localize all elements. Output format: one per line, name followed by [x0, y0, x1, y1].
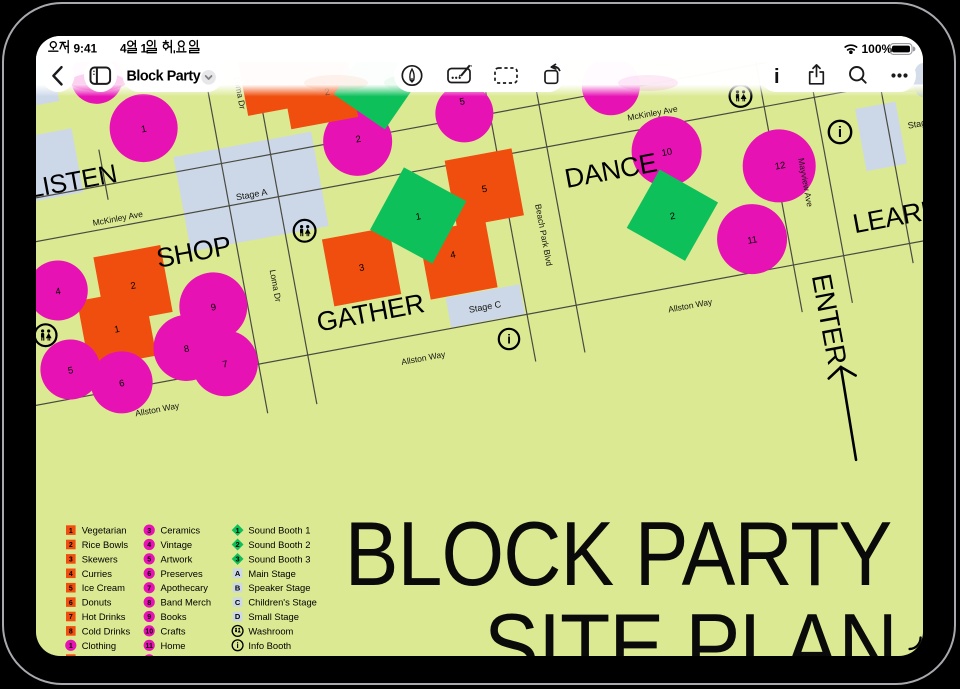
svg-text:Ceramics: Ceramics [161, 525, 201, 536]
svg-text:Rice Bowls: Rice Bowls [82, 539, 129, 550]
svg-text:10: 10 [145, 629, 153, 636]
svg-text:Ice Cream: Ice Cream [82, 582, 125, 593]
svg-text:11: 11 [746, 234, 758, 247]
svg-text:Band Merch: Band Merch [161, 597, 212, 608]
svg-text:Artwork: Artwork [161, 553, 193, 564]
svg-text:7: 7 [69, 614, 73, 621]
svg-text:Clothing: Clothing [82, 640, 116, 651]
svg-text:6: 6 [69, 600, 73, 607]
svg-text:3: 3 [236, 555, 240, 564]
svg-text:3: 3 [147, 528, 151, 535]
svg-text:2: 2 [236, 540, 240, 549]
svg-text:Allston Way: Allston Way [667, 296, 713, 314]
svg-text:Curries: Curries [82, 568, 113, 579]
svg-text:1: 1 [141, 42, 148, 56]
svg-text:LEARN: LEARN [850, 194, 923, 240]
svg-text:12: 12 [774, 160, 786, 173]
svg-text:Vintage: Vintage [161, 539, 193, 550]
svg-text:7: 7 [147, 585, 151, 592]
svg-text:Sound Booth 3: Sound Booth 3 [248, 553, 310, 564]
svg-text:Stage D: Stage D [907, 115, 923, 131]
svg-text:4: 4 [120, 42, 127, 56]
svg-text:100%: 100% [862, 42, 893, 56]
svg-text:2: 2 [69, 542, 73, 549]
svg-text:Block Party: Block Party [127, 69, 201, 85]
svg-text:Home: Home [161, 640, 186, 651]
svg-text:C: C [235, 598, 241, 607]
svg-text:9:41: 9:41 [74, 42, 98, 56]
svg-text:5: 5 [69, 585, 73, 592]
svg-text:Main Stage: Main Stage [248, 568, 295, 579]
svg-text:B: B [235, 583, 241, 592]
svg-text:Sound Booth 2: Sound Booth 2 [248, 539, 310, 550]
svg-text:1: 1 [236, 526, 240, 535]
svg-text:9: 9 [147, 614, 151, 621]
svg-text:i: i [507, 332, 511, 347]
svg-text:i: i [838, 124, 842, 141]
svg-text:i: i [774, 66, 780, 88]
svg-text:Cold Drinks: Cold Drinks [82, 625, 131, 636]
svg-text:Beach Park Blvd: Beach Park Blvd [533, 203, 554, 267]
svg-text:Books: Books [161, 611, 187, 622]
svg-text:Preserves: Preserves [161, 568, 204, 579]
svg-text:6: 6 [147, 571, 151, 578]
svg-text:Info Booth: Info Booth [248, 640, 291, 651]
svg-text:i: i [236, 641, 238, 650]
svg-text:Donuts: Donuts [82, 597, 112, 608]
svg-text:Speaker Stage: Speaker Stage [248, 582, 310, 593]
svg-text:5: 5 [147, 557, 151, 564]
svg-text:11: 11 [145, 643, 153, 650]
svg-text:McKinley Ave: McKinley Ave [92, 209, 144, 228]
svg-text:Skewers: Skewers [82, 553, 118, 564]
svg-text:D: D [235, 612, 241, 621]
svg-text:DANCE: DANCE [562, 147, 659, 193]
svg-text:Loma Dr: Loma Dr [268, 269, 284, 303]
svg-text:8: 8 [69, 629, 73, 636]
svg-text:A: A [235, 569, 241, 578]
svg-text:BLOCK PARTY: BLOCK PARTY [345, 504, 892, 606]
svg-text:Crafts: Crafts [161, 625, 186, 636]
svg-text:Children's Stage: Children's Stage [248, 597, 317, 608]
svg-text:ENTER: ENTER [806, 271, 853, 367]
svg-text:Hot Drinks: Hot Drinks [82, 611, 126, 622]
svg-text:8: 8 [147, 600, 151, 607]
svg-text:4: 4 [147, 542, 151, 549]
svg-text:Apothecary: Apothecary [161, 582, 209, 593]
svg-text:10: 10 [661, 146, 673, 159]
svg-text:SHOP: SHOP [154, 230, 234, 273]
svg-text:Allston Way: Allston Way [400, 349, 446, 367]
svg-text:1: 1 [69, 528, 73, 535]
svg-text:4: 4 [69, 571, 73, 578]
svg-text:Washroom: Washroom [248, 625, 293, 636]
svg-text:Small Stage: Small Stage [248, 611, 299, 622]
svg-text:SITE PLAN: SITE PLAN [484, 595, 897, 655]
svg-text:Sound Booth 1: Sound Booth 1 [248, 525, 310, 536]
svg-text:1: 1 [69, 643, 73, 650]
svg-text:3: 3 [69, 557, 73, 564]
svg-text:Vegetarian: Vegetarian [82, 525, 127, 536]
